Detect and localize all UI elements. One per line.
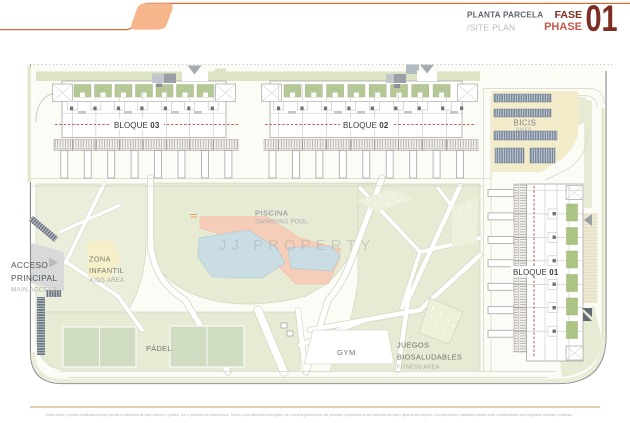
svg-text:ZONA: ZONA bbox=[89, 255, 111, 264]
svg-text:ACCESO: ACCESO bbox=[11, 260, 48, 270]
svg-text:GYM: GYM bbox=[337, 348, 356, 357]
svg-text:01: 01 bbox=[586, 0, 618, 40]
svg-text:BIOSALUDABLES: BIOSALUDABLES bbox=[397, 353, 462, 362]
svg-text:FASE: FASE bbox=[555, 9, 582, 21]
svg-text:JUEGOS: JUEGOS bbox=[397, 341, 429, 350]
svg-text:FITNESS AREA: FITNESS AREA bbox=[397, 365, 440, 371]
svg-text:PLANTA PARCELA: PLANTA PARCELA bbox=[467, 11, 543, 20]
svg-text:PÁDEL: PÁDEL bbox=[146, 344, 172, 353]
svg-text:INFANTIL: INFANTIL bbox=[89, 266, 124, 275]
svg-text:JJ PROPERTY: JJ PROPERTY bbox=[219, 237, 375, 254]
svg-text:/SITE PLAN: /SITE PLAN bbox=[467, 23, 515, 33]
svg-text:BLOQUE 01: BLOQUE 01 bbox=[513, 268, 559, 277]
svg-text:PISCINA: PISCINA bbox=[255, 209, 289, 218]
svg-text:Estas zonas y puntos modificac: Estas zonas y puntos modificaciones que … bbox=[46, 413, 572, 417]
svg-text:KIDS AREA: KIDS AREA bbox=[90, 278, 124, 284]
svg-text:PRINCIPAL: PRINCIPAL bbox=[11, 273, 57, 283]
svg-text:PHASE: PHASE bbox=[544, 21, 582, 33]
svg-text:BLOQUE 03: BLOQUE 03 bbox=[114, 121, 160, 130]
svg-text:MAIN ACCESS: MAIN ACCESS bbox=[11, 287, 57, 294]
svg-text:BIKES: BIKES bbox=[516, 127, 532, 133]
svg-text:SWIMMING POOL: SWIMMING POOL bbox=[255, 220, 308, 226]
svg-text:BICIS: BICIS bbox=[514, 119, 537, 128]
svg-text:BLOQUE 02: BLOQUE 02 bbox=[343, 121, 389, 130]
